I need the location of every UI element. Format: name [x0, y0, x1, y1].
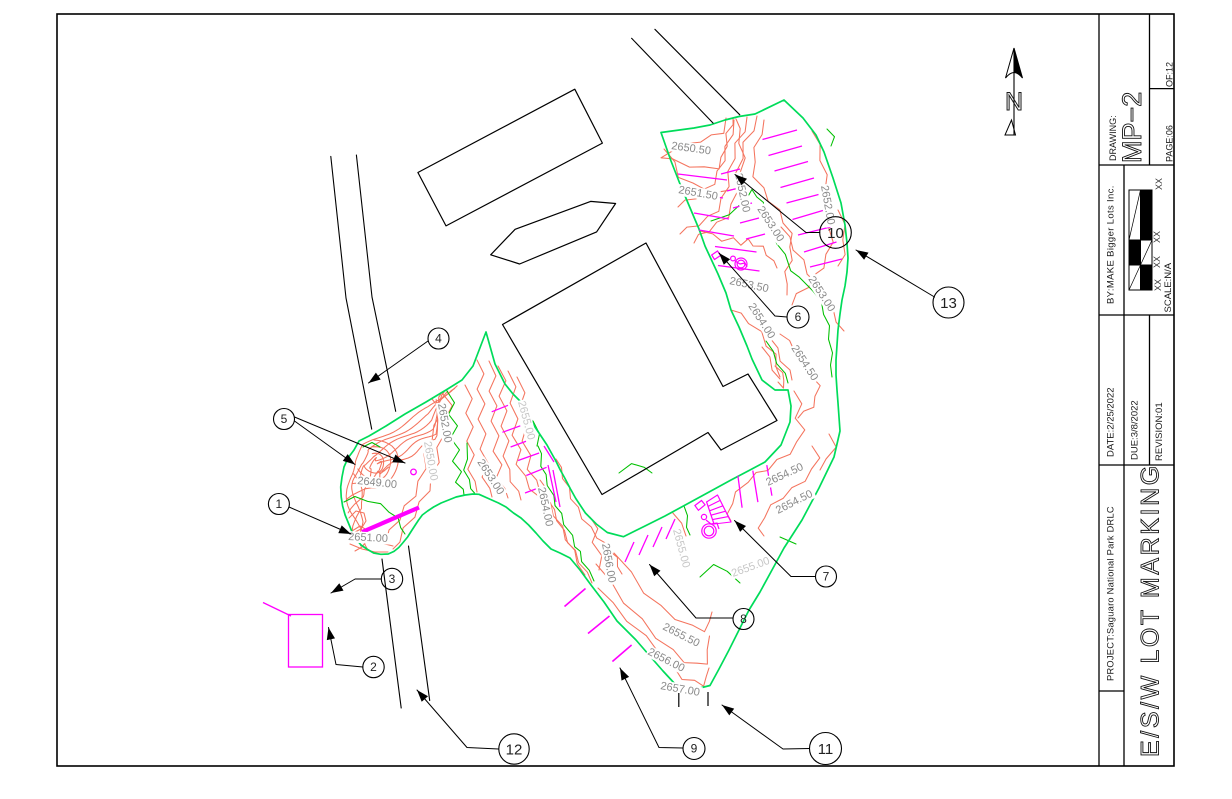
- svg-text:XX: XX: [1153, 279, 1163, 291]
- svg-text:9: 9: [691, 742, 698, 756]
- svg-text:8: 8: [740, 612, 747, 626]
- svg-text:XX: XX: [1154, 178, 1164, 190]
- svg-text:BY:MAKE Bigger Lots Inc.: BY:MAKE Bigger Lots Inc.: [1106, 185, 1117, 304]
- svg-text:2651.00: 2651.00: [348, 531, 388, 545]
- svg-text:1: 1: [276, 497, 283, 511]
- svg-text:OF:12: OF:12: [1165, 62, 1175, 87]
- svg-text:E/S/W LOT MARKING: E/S/W LOT MARKING: [1137, 463, 1165, 757]
- svg-text:10: 10: [827, 225, 844, 242]
- svg-text:6: 6: [795, 310, 802, 324]
- svg-text:11: 11: [818, 741, 834, 758]
- svg-text:DATE:2/25/2022: DATE:2/25/2022: [1106, 387, 1117, 457]
- svg-text:XX: XX: [1152, 231, 1162, 243]
- svg-text:DUE:3/8/2022: DUE:3/8/2022: [1130, 400, 1141, 460]
- svg-text:13: 13: [940, 295, 957, 312]
- svg-text:REVISION:01: REVISION:01: [1154, 402, 1165, 461]
- svg-text:2: 2: [370, 660, 377, 674]
- svg-text:3: 3: [389, 572, 396, 586]
- svg-text:MP−2: MP−2: [1117, 92, 1147, 163]
- svg-text:7: 7: [823, 570, 830, 584]
- svg-text:PROJECT:Saguaro National Park: PROJECT:Saguaro National Park DRLC: [1106, 506, 1116, 681]
- svg-text:XX: XX: [1152, 256, 1162, 268]
- svg-text:5: 5: [281, 412, 288, 426]
- svg-text:12: 12: [506, 741, 523, 758]
- svg-text:N: N: [1005, 88, 1023, 116]
- svg-text:SCALE:N/A: SCALE:N/A: [1163, 262, 1174, 312]
- svg-text:PAGE:06: PAGE:06: [1165, 125, 1175, 162]
- svg-text:4: 4: [435, 332, 442, 346]
